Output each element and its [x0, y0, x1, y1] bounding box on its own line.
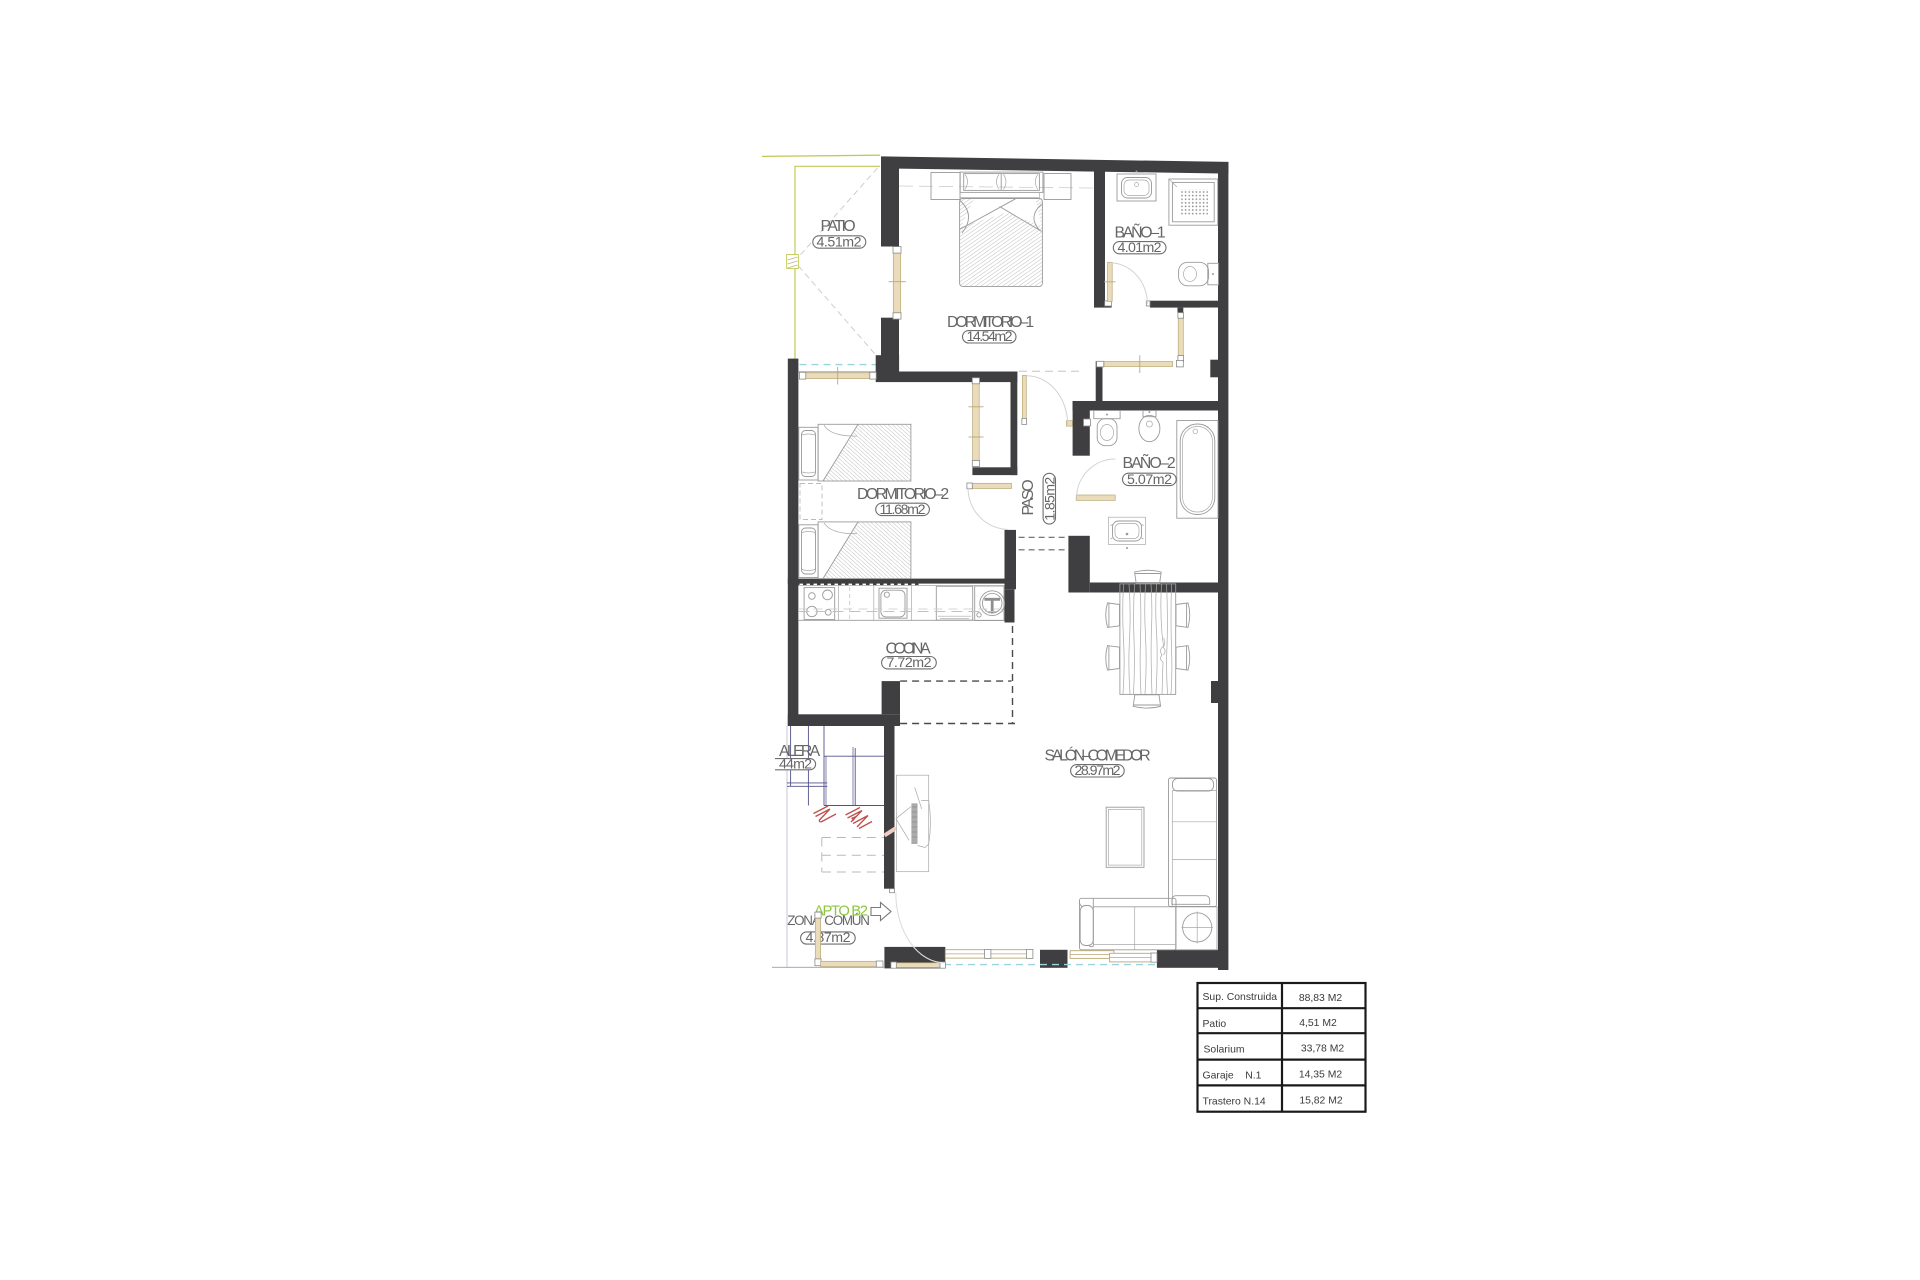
- svg-text:PASO: PASO: [1020, 479, 1037, 516]
- svg-text:PATIO: PATIO: [821, 218, 857, 235]
- svg-text:5.07m2: 5.07m2: [1127, 472, 1172, 488]
- svg-text:SALÓN–COMEDOR: SALÓN–COMEDOR: [1045, 746, 1152, 765]
- svg-text:Trastero N.14: Trastero N.14: [1203, 1097, 1266, 1108]
- svg-text:14.54m2: 14.54m2: [967, 329, 1013, 345]
- svg-text:Sup. Construida: Sup. Construida: [1203, 992, 1278, 1003]
- svg-text:ZONA COMÚN: ZONA COMÚN: [787, 913, 871, 928]
- svg-text:28.97m2: 28.97m2: [1075, 763, 1121, 779]
- svg-text:15,82 M2: 15,82 M2: [1299, 1096, 1343, 1107]
- svg-text:BAÑO–2: BAÑO–2: [1123, 452, 1177, 472]
- svg-text:Solarium: Solarium: [1204, 1045, 1245, 1056]
- svg-text:4.87m2: 4.87m2: [806, 930, 851, 946]
- svg-text:14,35 M2: 14,35 M2: [1299, 1070, 1343, 1081]
- svg-text:DORMITORIO–2: DORMITORIO–2: [857, 486, 950, 503]
- svg-text:BAÑO–1: BAÑO–1: [1115, 221, 1167, 241]
- svg-text:Patio: Patio: [1203, 1019, 1227, 1030]
- svg-text:33,78 M2: 33,78 M2: [1301, 1044, 1345, 1055]
- svg-text:1.85m2: 1.85m2: [1042, 477, 1058, 521]
- svg-text:11.68m2: 11.68m2: [880, 502, 926, 518]
- svg-text:4.51m2: 4.51m2: [817, 234, 862, 250]
- svg-text:Garaje N.1: Garaje N.1: [1203, 1071, 1262, 1082]
- svg-text:7.72m2: 7.72m2: [887, 655, 932, 671]
- svg-text:4,51 M2: 4,51 M2: [1299, 1018, 1337, 1029]
- svg-text:88,83 M2: 88,83 M2: [1299, 993, 1343, 1004]
- svg-text:4.01m2: 4.01m2: [1118, 240, 1162, 256]
- svg-text:44m2: 44m2: [779, 757, 812, 773]
